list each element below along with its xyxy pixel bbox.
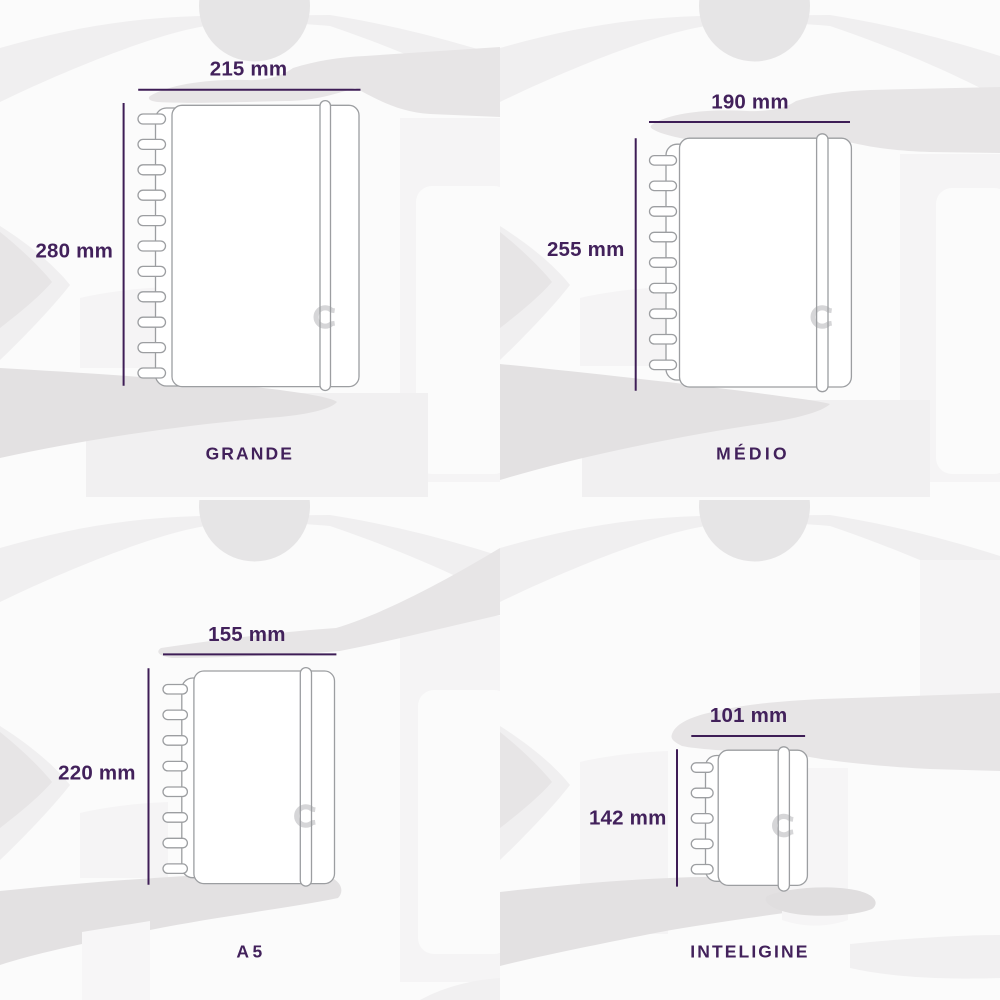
- svg-text:A5: A5: [236, 942, 265, 962]
- svg-text:MÉDIO: MÉDIO: [716, 443, 790, 464]
- svg-text:190 mm: 190 mm: [711, 90, 789, 113]
- svg-text:255 mm: 255 mm: [547, 238, 625, 261]
- svg-text:INTELIGINE: INTELIGINE: [690, 942, 809, 962]
- svg-text:GRANDE: GRANDE: [206, 444, 294, 464]
- svg-text:142 mm: 142 mm: [589, 806, 667, 829]
- svg-text:220 mm: 220 mm: [58, 761, 136, 784]
- svg-text:101 mm: 101 mm: [710, 704, 788, 727]
- svg-text:280 mm: 280 mm: [35, 240, 113, 263]
- svg-text:215 mm: 215 mm: [210, 57, 288, 80]
- svg-text:155 mm: 155 mm: [208, 623, 286, 646]
